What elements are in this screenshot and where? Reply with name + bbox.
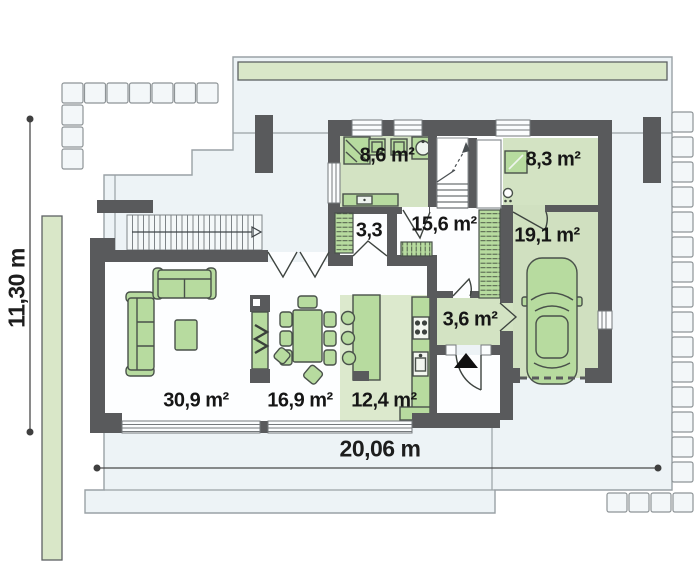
room-label-wc: 3,3 <box>356 220 382 243</box>
utility-window-unit <box>505 151 527 173</box>
staircase-interior <box>437 138 470 208</box>
fireplace <box>250 295 270 383</box>
sidelight-window <box>481 345 491 355</box>
sidelight-window <box>446 345 456 355</box>
room-label-utility: 8,3 m² <box>526 149 581 172</box>
room-label-hallway: 15,6 m² <box>411 214 476 237</box>
window <box>496 120 530 136</box>
room-label-bathroom: 8,6 m² <box>360 145 415 168</box>
kitchen-sink <box>413 352 428 376</box>
hall-bench <box>401 242 432 256</box>
window <box>598 311 612 329</box>
wardrobe-tall <box>479 210 500 298</box>
dimension-width-label: 20,06 m <box>340 436 421 463</box>
bath-counter <box>343 194 398 206</box>
cooktop <box>413 317 429 339</box>
stair-void <box>477 140 501 208</box>
window <box>328 163 340 203</box>
green-strip-left <box>42 216 62 560</box>
room-label-living: 30,9 m² <box>163 390 228 413</box>
dimension-height-label: 11,30 m <box>4 248 31 328</box>
window <box>352 120 382 136</box>
window <box>268 421 412 433</box>
sofa-3seat <box>126 292 154 376</box>
window <box>122 421 260 433</box>
floor-plan-canvas <box>0 0 700 575</box>
staircase-exterior <box>127 215 262 250</box>
room-label-garage: 19,1 m² <box>514 225 579 248</box>
room-label-dining: 16,9 m² <box>267 390 332 413</box>
room-label-vestibule: 3,6 m² <box>443 309 498 332</box>
sofa-2seat <box>153 268 216 299</box>
wardrobe <box>335 213 353 253</box>
green-strip-top <box>238 62 667 80</box>
car <box>522 258 582 384</box>
room-label-kitchen: 12,4 m² <box>351 390 416 413</box>
floor-plan-page: 8,6 m² 8,3 m² 3,3 15,6 m² 19,1 m² 3,6 m²… <box>0 0 700 575</box>
coffee-table <box>175 320 197 350</box>
window <box>394 120 422 136</box>
